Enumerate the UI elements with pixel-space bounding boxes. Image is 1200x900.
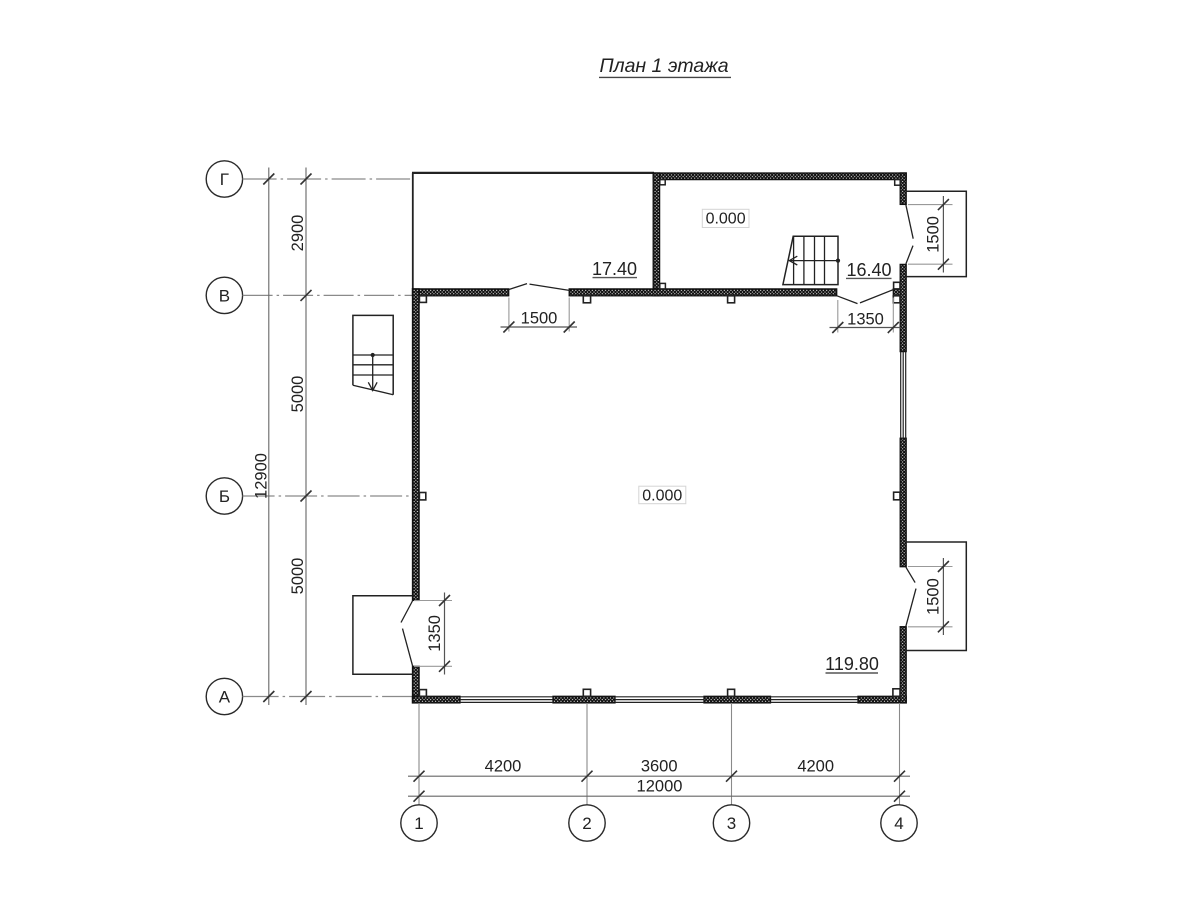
svg-text:2: 2 xyxy=(582,814,591,833)
svg-text:12000: 12000 xyxy=(637,778,683,796)
svg-text:17.40: 17.40 xyxy=(592,259,637,279)
svg-text:1350: 1350 xyxy=(847,311,884,329)
svg-text:А: А xyxy=(219,688,231,707)
svg-text:План 1 этажа: План 1 этажа xyxy=(599,55,728,77)
svg-text:2900: 2900 xyxy=(289,215,307,252)
svg-text:16.40: 16.40 xyxy=(846,260,891,280)
svg-text:0.000: 0.000 xyxy=(642,487,682,504)
svg-text:1: 1 xyxy=(414,814,423,833)
svg-text:Г: Г xyxy=(220,170,229,189)
svg-text:5000: 5000 xyxy=(289,558,307,595)
svg-text:Б: Б xyxy=(219,487,230,506)
svg-text:1500: 1500 xyxy=(925,578,943,615)
svg-text:119.80: 119.80 xyxy=(825,654,879,674)
svg-text:1500: 1500 xyxy=(925,216,943,253)
svg-text:4200: 4200 xyxy=(485,758,522,776)
svg-text:12900: 12900 xyxy=(252,453,270,499)
svg-text:1350: 1350 xyxy=(426,615,444,652)
svg-text:4200: 4200 xyxy=(797,758,834,776)
svg-text:0.000: 0.000 xyxy=(706,211,746,228)
svg-text:3: 3 xyxy=(727,814,736,833)
svg-text:3600: 3600 xyxy=(641,758,678,776)
svg-text:В: В xyxy=(219,286,230,305)
svg-text:5000: 5000 xyxy=(289,376,307,413)
svg-text:4: 4 xyxy=(894,814,903,833)
svg-text:1500: 1500 xyxy=(521,310,558,328)
